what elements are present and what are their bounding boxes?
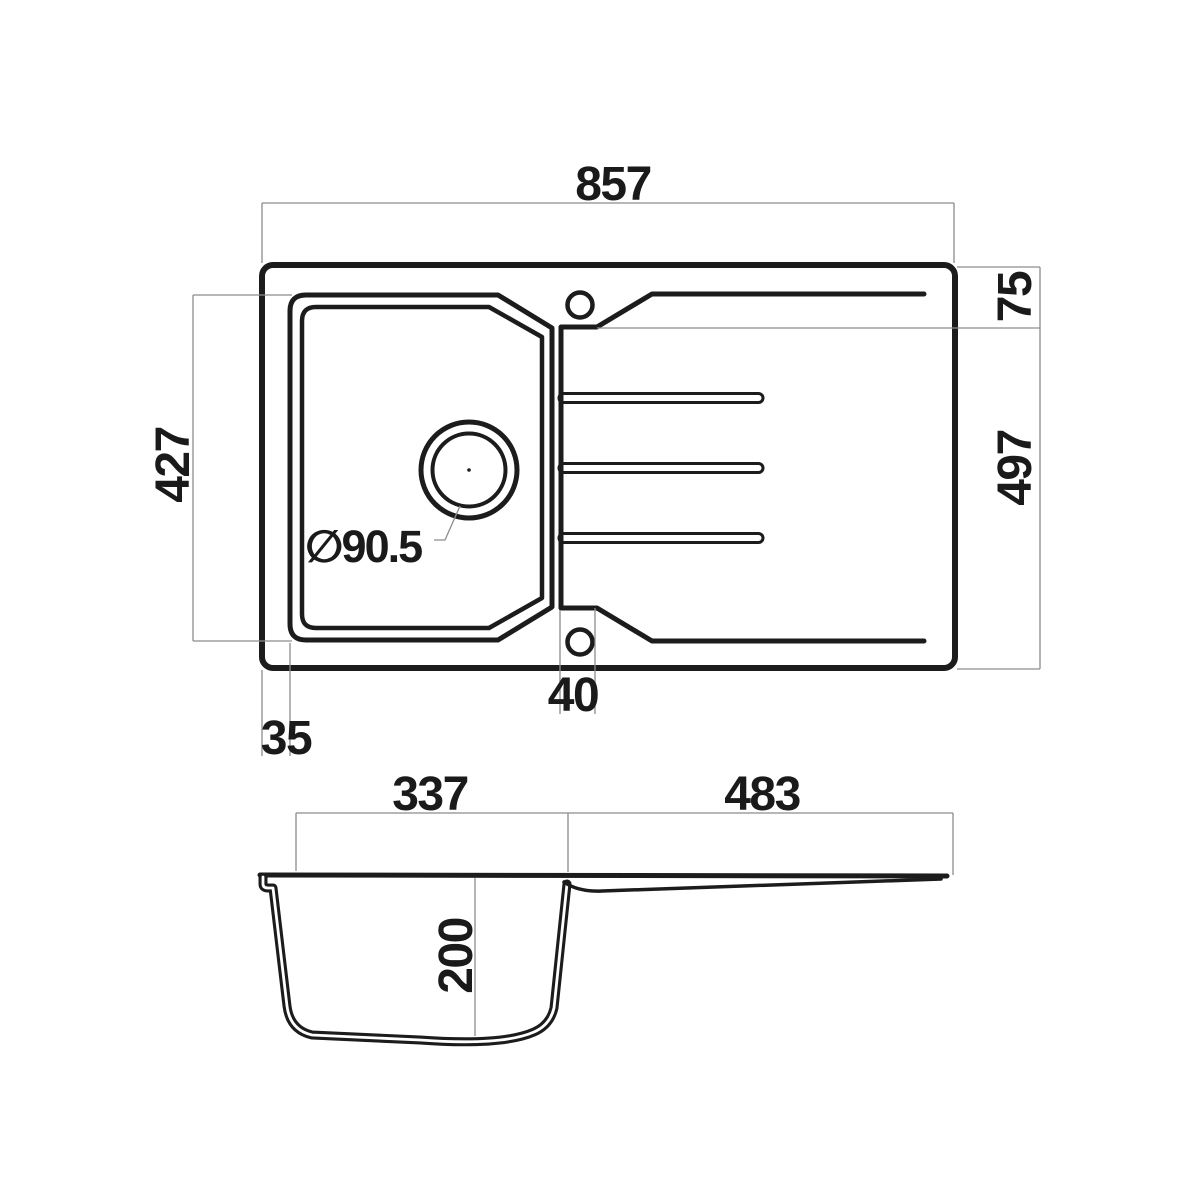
dim-edge-offset: 35 <box>261 712 312 765</box>
dim-bowl-length: 427 <box>147 427 200 503</box>
drainer-groove <box>559 394 763 403</box>
plan-view <box>262 265 955 668</box>
dim-overall-width: 857 <box>575 158 651 211</box>
dim-hole-offset: 40 <box>548 669 598 722</box>
sink-technical-drawing: 857 427 75 497 35 40 ∅90.5 <box>0 0 1200 1200</box>
dim-drainer-length: 483 <box>724 768 800 821</box>
dim-bowl-depth: 200 <box>430 918 483 994</box>
dim-overall-depth: 497 <box>989 430 1042 506</box>
dim-drain-diameter: ∅90.5 <box>305 521 422 572</box>
section-rim-surface <box>260 875 947 876</box>
section-bowl-wall-outer <box>263 877 567 1042</box>
dim-rim-to-drainer: 75 <box>989 271 1042 322</box>
faucet-hole-bottom <box>568 630 593 655</box>
section-view <box>260 875 947 1042</box>
drain-center-mark <box>467 468 471 472</box>
drainer-groove <box>559 464 763 473</box>
section-drainboard-underside <box>564 879 941 891</box>
section-bowl-wall-inner <box>263 877 567 1042</box>
plan-view-dimensions: 857 427 75 497 35 40 ∅90.5 <box>147 158 1042 765</box>
drainboard-outline <box>561 294 924 641</box>
technical-drawing-page: 857 427 75 497 35 40 ∅90.5 <box>0 0 1200 1200</box>
sink-outline <box>262 265 955 668</box>
dim-bowl-inner-width: 337 <box>392 768 468 821</box>
faucet-hole-top <box>568 293 593 318</box>
section-view-dimensions: 337 483 200 <box>296 768 953 1036</box>
drainer-groove <box>559 534 763 543</box>
